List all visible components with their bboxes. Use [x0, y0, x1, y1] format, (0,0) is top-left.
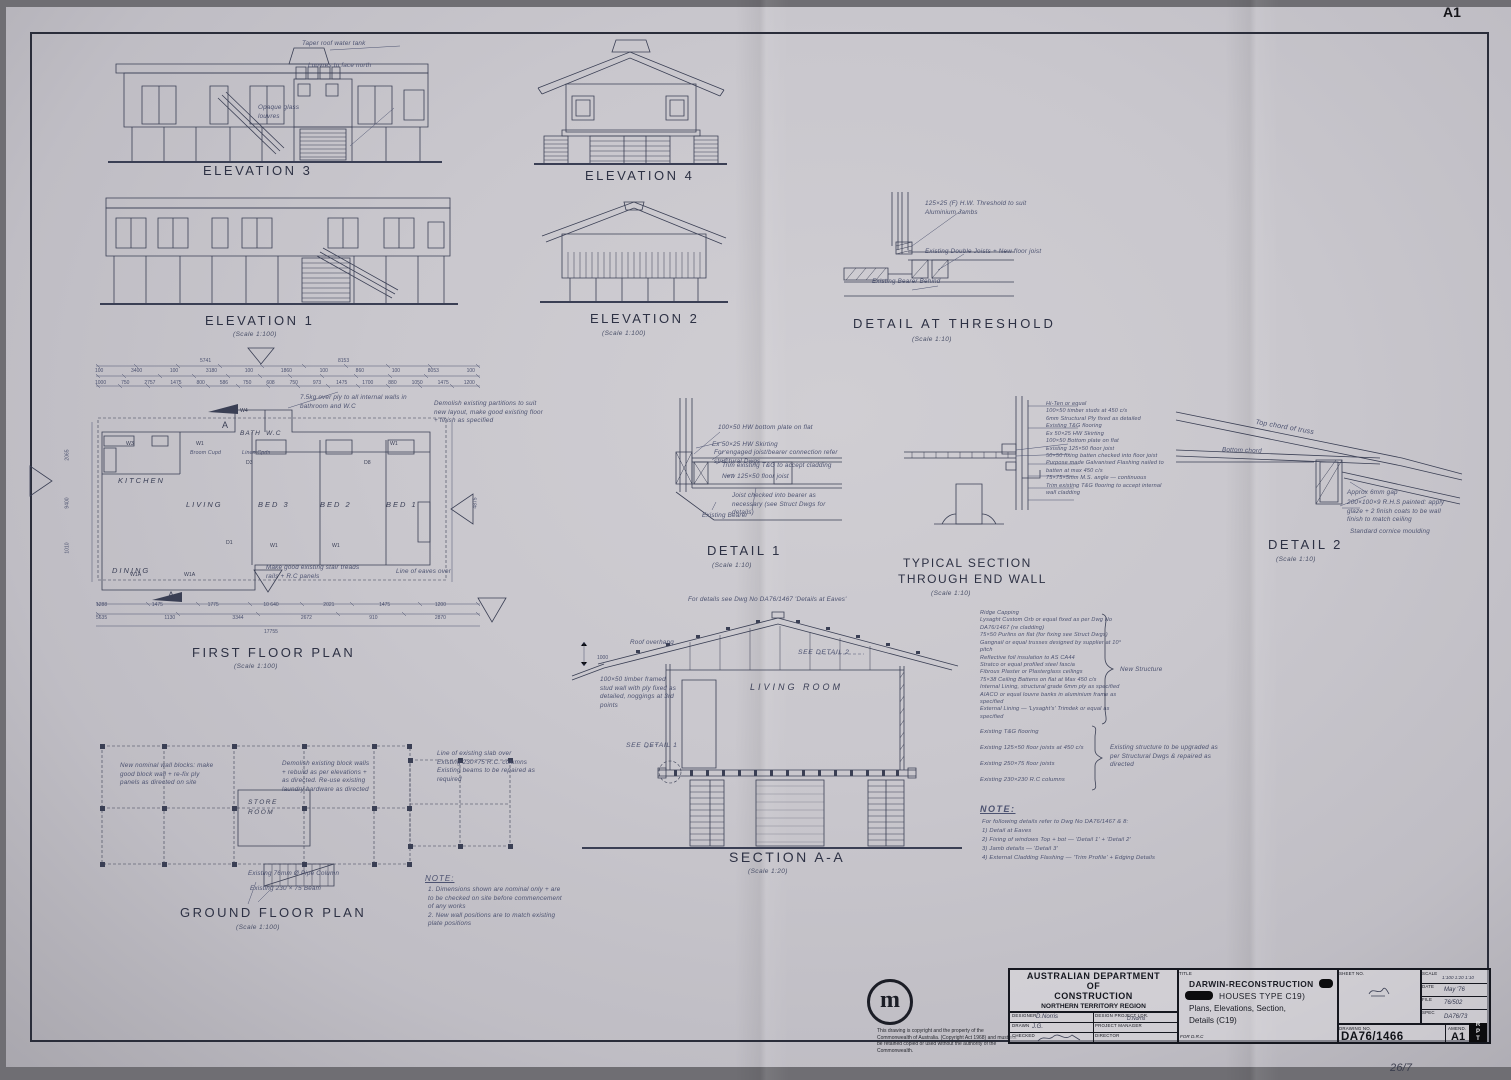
title-block-title: TITLE DARWIN-RECONSTRUCTION HOUSES TYPE …	[1177, 970, 1339, 1042]
dimension: 8053	[428, 368, 439, 374]
project-title-line-1: DARWIN-RECONSTRUCTION	[1189, 979, 1314, 989]
window-tag: W3	[126, 441, 134, 447]
elevation-4-drawing	[528, 36, 733, 168]
opaque-glass-note: Opaque glass louvres	[258, 104, 320, 121]
dim-row-bottom-1: 12881475177510 640202114751200	[96, 602, 446, 608]
note-right-title: NOTE:	[980, 804, 1016, 814]
bottom-chord-note: Bottom chord	[1222, 446, 1262, 454]
department-line: CONSTRUCTION	[1010, 992, 1177, 1002]
elevation-1-scale: (Scale 1:100)	[233, 331, 277, 338]
dimension: 1475	[438, 380, 449, 386]
ground-demolish-note: Demolish existing block walls + rebuild …	[282, 760, 370, 794]
dimension: 2672	[301, 615, 312, 621]
plan-broom-note: Broom Cupd	[190, 450, 221, 456]
note-line: 3) Jamb details — 'Detail 3'	[982, 845, 1232, 854]
section-marker-a-bottom: A	[168, 590, 174, 600]
detail1-note-4: Trim existing T&G to accept cladding	[722, 462, 832, 469]
dimension: 10 640	[263, 602, 278, 608]
dimension: 1130	[164, 615, 175, 621]
rhs-note: 200×100×9 R.H.S painted: apply glaze + 2…	[1347, 499, 1455, 525]
dim-8153: 8153	[338, 358, 349, 364]
dimension: 586	[220, 380, 228, 386]
dimension: 1475	[379, 602, 390, 608]
detail1-note-6: Joist checked into bearer as necessary (…	[732, 492, 844, 518]
spec-value: DA76/73	[1444, 1014, 1467, 1020]
dimension: 860	[356, 368, 364, 374]
project-title-line-2: HOUSES TYPE C19)	[1219, 991, 1305, 1001]
dimension: 910	[369, 615, 377, 621]
for-note: FOR D.R.C	[1180, 1034, 1203, 1039]
annotation-line: 100×50 Bottom plate on flat	[1046, 438, 1164, 445]
note-line: 2. New wall positions are to match exist…	[428, 912, 568, 929]
dimension: 100	[467, 368, 475, 374]
dim-side: 1010	[65, 542, 71, 553]
section-marker-a-top: A	[222, 420, 228, 430]
detail1-note-2: Ex 50×25 HW Skirting	[712, 441, 778, 448]
window-tag: W4	[240, 408, 248, 414]
window-tag: W1A	[130, 572, 141, 578]
ground-left-note: New nominal wall blocks: make good block…	[120, 762, 220, 788]
beam-note: Existing 230 × 75 Beam	[250, 885, 321, 892]
annotation-line: Hi-Ten or equal	[1046, 401, 1164, 408]
gap-note: Approx 6mm gap	[1347, 489, 1398, 496]
commonwealth-logo-icon: m	[867, 979, 913, 1025]
handwritten-mark: 26/7	[1390, 1062, 1412, 1074]
spec-label: SPEC	[1422, 1010, 1435, 1015]
drawn-label: DRAWN	[1012, 1023, 1029, 1028]
ground-floor-plan-title: GROUND FLOOR PLAN	[180, 905, 366, 920]
dimension: 1860	[281, 368, 292, 374]
annotation-line: Existing T&G flooring	[1046, 423, 1164, 430]
sheet-no-scribble	[1365, 984, 1391, 998]
elevation-2-scale: (Scale 1:100)	[602, 330, 646, 337]
department-name: AUSTRALIAN DEPARTMENT OF CONSTRUCTION	[1010, 972, 1177, 1002]
plan-eaves-note: Line of eaves over	[396, 568, 451, 575]
dimension: 1200	[464, 380, 475, 386]
dimension: 750	[290, 380, 298, 386]
plan-spec-note: Demolish existing partitions to suit new…	[434, 400, 544, 426]
see-detail-1-note: SEE DETAIL 1	[626, 742, 678, 749]
title-block-right: SHEET NO. SCALE 1:100 1:20 1:10 DATE May…	[1337, 970, 1487, 1042]
designer-value: D.Norris	[1036, 1014, 1058, 1020]
dimension: 100	[170, 368, 178, 374]
threshold-title: DETAIL AT THRESHOLD	[853, 316, 1056, 331]
section-aa-title: SECTION A-A	[729, 849, 845, 865]
annotation-line: Trim existing T&G flooring to accept int…	[1046, 483, 1164, 498]
title-label: TITLE	[1179, 971, 1192, 976]
typical-section-title-2: THROUGH END WALL	[898, 572, 1047, 586]
sheet-no-cell: SHEET NO.	[1337, 970, 1422, 1023]
note-right-lines: For following details refer to Dwg No DA…	[982, 818, 1232, 863]
room-kitchen: KITCHEN	[118, 476, 165, 485]
annotation-line: 100×50 timber studs at 450 c/s	[1046, 408, 1164, 415]
dimension: 1000	[95, 380, 106, 386]
annotation-line: 50×50 fixing batten checked into floor j…	[1046, 453, 1164, 460]
room-bed2: BED 2	[320, 500, 352, 509]
drawing-no-cell: DRAWING NO. DA76/1466	[1337, 1023, 1445, 1044]
dimension: 973	[313, 380, 321, 386]
scale-value: 1:100 1:20 1:10	[1442, 975, 1474, 980]
date-value: May '76	[1444, 987, 1465, 993]
plan-linen-note: Linen Cpds	[242, 450, 270, 456]
plan-ply-note: 7.5kg over ply to all internal walls in …	[300, 394, 410, 411]
threshold-note-1: 125×25 (F) H.W. Threshold to suit Alumin…	[925, 200, 1043, 217]
note-line: 1. Dimensions shown are nominal only + a…	[428, 886, 568, 912]
dim-row-bottom-2: 56351130334426729102870	[96, 615, 446, 621]
director-cell: DIRECTOR	[1093, 1032, 1177, 1042]
elevation-1-drawing	[92, 192, 464, 312]
designer-label: DESIGNER	[1012, 1013, 1037, 1018]
annotation-line: Existing 125×50 floor joist	[1046, 446, 1164, 453]
project-title-line-3: Plans, Elevations, Section,	[1189, 1004, 1286, 1013]
threshold-note-2: Existing Double Joists + New floor joist	[925, 248, 1043, 257]
project-manager-label: PROJECT MANAGER	[1095, 1023, 1142, 1028]
dimension: 750	[243, 380, 251, 386]
ground-right-notes: Line of existing slab overExisting 230×7…	[437, 750, 559, 784]
dimension: 1475	[170, 380, 181, 386]
ground-floor-plan-scale: (Scale 1:100)	[236, 924, 280, 931]
window-tag: W1	[270, 543, 278, 549]
detail1-note-7: Existing Bearer	[702, 512, 748, 519]
note-line: 4) External Cladding Flashing — 'Trim Pr…	[982, 854, 1232, 863]
amend-cell: AMEND. A1	[1445, 1023, 1470, 1044]
note-line: 2) Fixing of windows Top + bot — 'Detail…	[982, 836, 1232, 845]
section-dim-1000: 1000	[597, 655, 608, 661]
dimension: 100	[320, 368, 328, 374]
see-detail-2-note: SEE DETAIL 2	[798, 649, 850, 656]
first-floor-plan-title: FIRST FLOOR PLAN	[192, 645, 355, 660]
threshold-scale: (Scale 1:10)	[912, 336, 952, 343]
room-store: STORE ROOM	[248, 798, 288, 818]
project-title-line-4: Details (C19)	[1189, 1016, 1237, 1025]
title-block-department: AUSTRALIAN DEPARTMENT OF CONSTRUCTION NO…	[1010, 970, 1179, 1042]
typical-section-scale: (Scale 1:10)	[931, 590, 971, 597]
dimension: 1775	[208, 602, 219, 608]
elevation-1-title: ELEVATION 1	[205, 313, 314, 328]
elevation-3-drawing	[98, 38, 446, 168]
window-tag: W1A	[184, 572, 195, 578]
brace-existing-structure	[1090, 724, 1108, 792]
dimension: 1475	[152, 602, 163, 608]
scale-label: SCALE	[1422, 971, 1437, 976]
threshold-note-3: Existing Bearer Behind	[872, 278, 952, 287]
checked-signature	[1036, 1032, 1082, 1044]
annotation-line: 6mm Structural Ply fixed as detailed	[1046, 416, 1164, 423]
date-cell: DATE May '76	[1420, 983, 1487, 997]
drawing-no-value: DA76/1466	[1341, 1031, 1404, 1043]
window-tag: W1	[390, 441, 398, 447]
dimension: 3400	[131, 368, 142, 374]
revision-triangle	[449, 492, 475, 526]
checked-label: CHECKED	[1012, 1033, 1035, 1038]
dimension: 1288	[96, 602, 107, 608]
note-line: For following details refer to Dwg No DA…	[982, 818, 1232, 827]
rpt-stamp: RPT	[1469, 1023, 1487, 1042]
room-living: LIVING	[186, 500, 223, 509]
dim-total: 17755	[264, 629, 278, 635]
note-line: 1) Detail at Eaves	[982, 827, 1232, 836]
annotation-line: Purpose made Galvanised Flashing nailed …	[1046, 460, 1164, 475]
water-tank-note: Taper roof water tank	[302, 40, 382, 49]
dimension: 3344	[232, 615, 243, 621]
date-label: DATE	[1422, 984, 1434, 989]
dimension: 1475	[336, 380, 347, 386]
room-bed1: BED 1	[386, 500, 418, 509]
scale-cell: SCALE 1:100 1:20 1:10	[1420, 970, 1487, 984]
dimension: 800	[196, 380, 204, 386]
dimension: 1200	[435, 602, 446, 608]
roof-overhang-note: Roof overhang	[630, 639, 674, 646]
door-tag: D3	[246, 460, 253, 466]
sheet-size-mark: A1	[1443, 4, 1461, 20]
window-tag: W1	[332, 543, 340, 549]
detail-2-scale: (Scale 1:10)	[1276, 556, 1316, 563]
dimension: 2870	[435, 615, 446, 621]
first-floor-plan-drawing	[88, 352, 488, 642]
room-bed3: BED 3	[258, 500, 290, 509]
dimension: 100	[95, 368, 103, 374]
louvres-note: Louvres to face north	[308, 62, 388, 71]
dim-side: 2065	[65, 449, 71, 460]
elevation-3-title: ELEVATION 3	[203, 163, 312, 178]
redaction-blob	[1319, 979, 1333, 988]
detail-2-title: DETAIL 2	[1268, 537, 1343, 552]
revision-triangle	[252, 568, 284, 594]
sheet-no-label: SHEET NO.	[1339, 971, 1364, 976]
annotation-line: Ex 50×25 HW Skirting	[1046, 431, 1164, 438]
existing-structure-label: Existing structure to be upgraded as per…	[1110, 744, 1220, 770]
typical-section-notes: Hi-Ten or equal100×50 timber studs at 45…	[1046, 401, 1164, 497]
dim-side: 9400	[65, 497, 71, 508]
annotation-line: 75×75×5mm M.S. angle — continuous	[1046, 475, 1164, 482]
dimension: 1700	[362, 380, 373, 386]
detail1-note-5: New 125×50 floor joist	[722, 473, 808, 482]
drawn-value: J.G.	[1032, 1024, 1043, 1030]
door-tag: D1	[226, 540, 233, 546]
title-block: AUSTRALIAN DEPARTMENT OF CONSTRUCTION NO…	[1008, 968, 1491, 1044]
file-value: 76/502	[1444, 1000, 1462, 1006]
revision-triangle	[476, 596, 508, 624]
revision-triangle	[28, 464, 54, 498]
typical-section-title-1: TYPICAL SECTION	[903, 556, 1032, 570]
note-mid-lines: 1. Dimensions shown are nominal only + a…	[428, 886, 568, 929]
elevation-2-drawing	[534, 192, 734, 308]
door-tag: D8	[364, 460, 371, 466]
annotation-line: Line of existing slab over	[437, 750, 559, 759]
detail1-note-1: 100×50 HW bottom plate on flat	[718, 424, 814, 433]
dimension: 5635	[96, 615, 107, 621]
director-label: DIRECTOR	[1095, 1033, 1119, 1038]
file-cell: FILE 76/502	[1420, 996, 1487, 1010]
dim-row-3: 1000750275714758005867506087509731475170…	[95, 380, 475, 386]
checked-cell: CHECKED	[1010, 1032, 1094, 1042]
logo-letter: m	[880, 988, 900, 1012]
dimension: 100	[245, 368, 253, 374]
section-top-note: For details see Dwg No DA76/1467 'Detail…	[688, 596, 888, 605]
dimension: 2757	[144, 380, 155, 386]
elevation-2-title: ELEVATION 2	[590, 311, 699, 326]
dimension: 750	[121, 380, 129, 386]
dimension: 100	[392, 368, 400, 374]
dim-row-2: 1003400100318010018601008601008053100	[95, 368, 475, 374]
note-mid-title: NOTE:	[425, 874, 454, 883]
new-structure-label: New Structure	[1120, 666, 1163, 673]
room-living-room: LIVING ROOM	[750, 682, 843, 692]
pipe-column-note: Existing 76mm Ø Pipe Column	[248, 870, 339, 877]
dimension: 3180	[206, 368, 217, 374]
dimension: 880	[388, 380, 396, 386]
first-floor-plan-scale: (Scale 1:100)	[234, 663, 278, 670]
detail-1-title: DETAIL 1	[707, 543, 782, 558]
spec-cell: SPEC DA76/73	[1420, 1009, 1487, 1023]
redaction-blob	[1185, 991, 1213, 1000]
room-bath: BATH	[240, 430, 261, 437]
brace-new-structure	[1100, 612, 1118, 726]
file-label: FILE	[1422, 997, 1432, 1002]
section-aa-scale: (Scale 1:20)	[748, 868, 788, 875]
amend-value: A1	[1451, 1031, 1465, 1043]
section-wall-note: 100×50 timber framed stud wall with ply …	[600, 676, 680, 710]
annotation-line: Existing 230×75 R.C. columns	[437, 759, 559, 768]
room-wc: W.C	[266, 430, 281, 437]
detail-1-scale: (Scale 1:10)	[712, 562, 752, 569]
cornice-note: Standard cornice moulding	[1350, 528, 1430, 535]
copyright-note: This drawing is copyright and the proper…	[877, 1028, 1017, 1054]
dimension: 608	[266, 380, 274, 386]
dimension: 2021	[323, 602, 334, 608]
window-tag: W1	[196, 441, 204, 447]
dimension: 1050	[412, 380, 423, 386]
annotation-line: Existing beams to be repaired as require…	[437, 767, 559, 784]
elevation-4-title: ELEVATION 4	[585, 168, 694, 183]
scanned-drawing-sheet: A1 Taper roof water tank Louvres to face…	[0, 0, 1511, 1080]
dim-5741: 5741	[200, 358, 211, 364]
